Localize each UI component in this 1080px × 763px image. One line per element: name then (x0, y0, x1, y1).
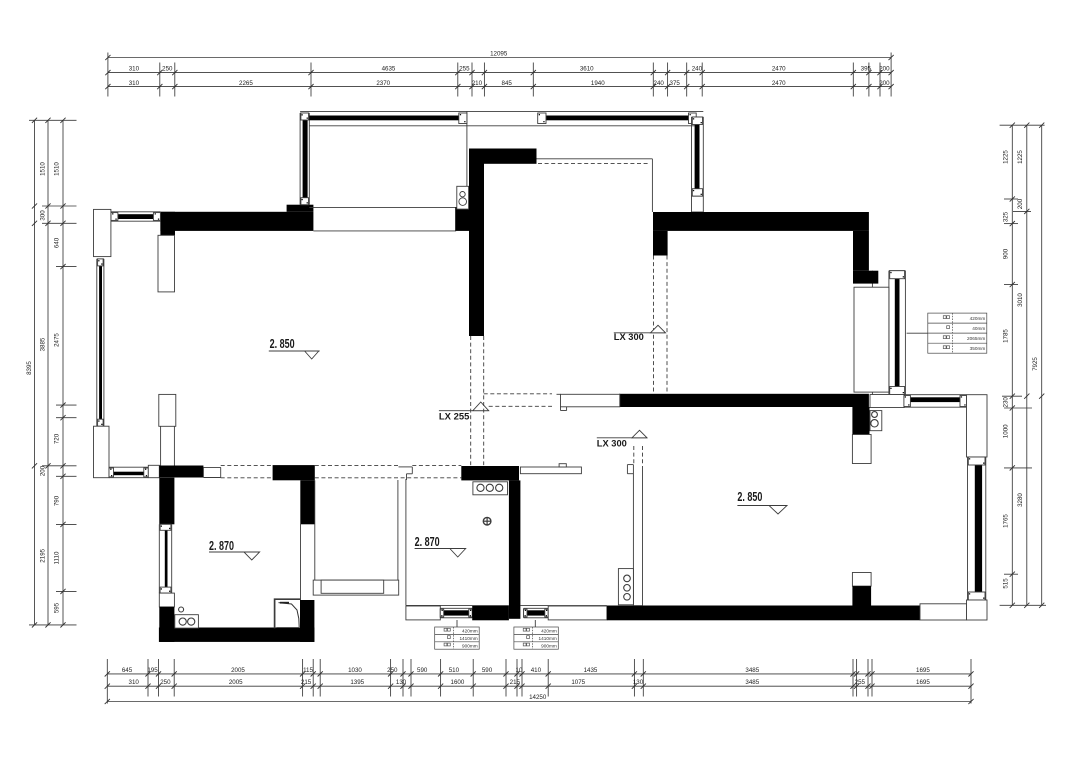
svg-text:2195: 2195 (40, 548, 47, 562)
svg-text:LX 300: LX 300 (597, 439, 627, 449)
svg-text:215: 215 (510, 679, 521, 686)
svg-text:130: 130 (396, 679, 407, 686)
svg-text:200: 200 (1017, 198, 1024, 209)
svg-text:1225: 1225 (1017, 150, 1024, 164)
svg-text:1510: 1510 (54, 162, 61, 176)
svg-text:LX 255: LX 255 (439, 412, 470, 422)
svg-text:1695: 1695 (916, 679, 930, 686)
svg-text:310: 310 (129, 679, 140, 686)
svg-text:195: 195 (147, 667, 158, 674)
svg-text:1110: 1110 (54, 551, 61, 564)
svg-text:350mm: 350mm (970, 346, 986, 351)
svg-text:1695: 1695 (916, 667, 930, 674)
svg-text:4635: 4635 (382, 66, 396, 73)
svg-text:1435: 1435 (584, 667, 598, 674)
svg-text:1600: 1600 (451, 679, 465, 686)
svg-text:1075: 1075 (571, 679, 585, 686)
svg-text:2. 870: 2. 870 (415, 535, 440, 549)
svg-text:590: 590 (417, 667, 428, 674)
svg-text:845: 845 (502, 80, 513, 87)
svg-text:1000: 1000 (1003, 424, 1010, 438)
svg-text:250: 250 (387, 667, 398, 674)
svg-text:2. 850: 2. 850 (270, 337, 295, 351)
svg-text:900: 900 (1003, 248, 1010, 259)
svg-text:LX 300: LX 300 (614, 332, 644, 342)
svg-text:200: 200 (879, 80, 890, 87)
svg-text:1410mm: 1410mm (539, 636, 557, 641)
svg-text:645: 645 (122, 667, 133, 674)
svg-text:2005: 2005 (229, 679, 243, 686)
svg-text:3885: 3885 (40, 337, 47, 351)
svg-text:640: 640 (54, 237, 61, 248)
svg-text:310: 310 (129, 80, 140, 87)
svg-text:1030: 1030 (348, 667, 362, 674)
svg-text:3485: 3485 (745, 667, 759, 674)
svg-text:1225: 1225 (1003, 150, 1010, 164)
svg-text:595: 595 (54, 602, 61, 613)
svg-text:900mm: 900mm (541, 643, 557, 648)
svg-text:240: 240 (654, 80, 665, 87)
svg-text:420mm: 420mm (541, 629, 557, 634)
svg-text:240: 240 (692, 66, 703, 73)
svg-text:7925: 7925 (1032, 357, 1039, 371)
svg-text:250: 250 (162, 66, 173, 73)
svg-text:3610: 3610 (580, 66, 594, 73)
svg-text:215: 215 (301, 679, 312, 686)
svg-text:255: 255 (459, 66, 470, 73)
svg-text:14250: 14250 (529, 694, 547, 701)
svg-text:250: 250 (160, 679, 171, 686)
svg-text:515: 515 (1003, 578, 1010, 589)
svg-text:8395: 8395 (26, 361, 33, 375)
svg-text:3010: 3010 (1017, 293, 1024, 307)
svg-text:590: 590 (482, 667, 493, 674)
svg-text:310: 310 (129, 66, 140, 73)
svg-text:395: 395 (861, 66, 872, 73)
svg-text:720: 720 (54, 433, 61, 444)
svg-text:790: 790 (54, 495, 61, 506)
svg-text:375: 375 (670, 80, 681, 87)
svg-text:2370: 2370 (376, 80, 390, 87)
svg-text:2065mm: 2065mm (967, 336, 985, 341)
svg-text:1410mm: 1410mm (459, 636, 477, 641)
svg-text:12095: 12095 (490, 51, 508, 58)
svg-text:210: 210 (472, 80, 483, 87)
svg-text:2005: 2005 (231, 667, 245, 674)
svg-text:325: 325 (1003, 211, 1010, 222)
svg-text:10: 10 (516, 667, 523, 674)
svg-text:2475: 2475 (54, 333, 61, 347)
svg-text:255: 255 (855, 679, 866, 686)
svg-text:510: 510 (449, 667, 460, 674)
svg-text:40mm: 40mm (972, 326, 985, 331)
svg-text:3280: 3280 (1017, 493, 1024, 507)
svg-text:130: 130 (633, 679, 644, 686)
svg-text:410: 410 (531, 667, 542, 674)
svg-text:230: 230 (1003, 397, 1010, 408)
svg-text:200: 200 (879, 66, 890, 73)
svg-text:1510: 1510 (40, 162, 47, 176)
svg-text:300: 300 (40, 210, 47, 221)
svg-text:200: 200 (40, 465, 47, 476)
svg-text:3485: 3485 (745, 679, 759, 686)
svg-text:2. 870: 2. 870 (209, 539, 234, 553)
svg-text:1395: 1395 (350, 679, 364, 686)
svg-text:2. 850: 2. 850 (737, 490, 762, 504)
svg-text:2470: 2470 (772, 66, 786, 73)
svg-text:420mm: 420mm (970, 316, 986, 321)
svg-text:2265: 2265 (239, 80, 253, 87)
svg-text:1940: 1940 (591, 80, 605, 87)
svg-text:2470: 2470 (772, 80, 786, 87)
svg-text:900mm: 900mm (462, 643, 478, 648)
svg-text:1765: 1765 (1003, 514, 1010, 528)
svg-text:420mm: 420mm (462, 629, 478, 634)
svg-text:115: 115 (303, 667, 313, 674)
svg-text:1785: 1785 (1003, 329, 1010, 343)
